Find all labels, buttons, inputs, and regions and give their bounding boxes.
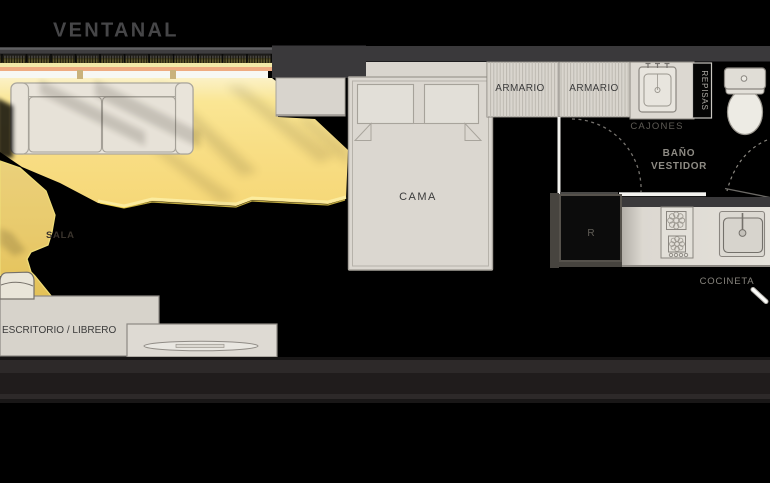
svg-text:VENTANAL: VENTANAL [53,20,179,42]
svg-text:BAÑO: BAÑO [663,146,696,159]
svg-text:VESTIDOR: VESTIDOR [651,161,707,172]
svg-text:REPISAS: REPISAS [700,70,709,110]
svg-text:SALA: SALA [46,230,75,241]
svg-text:ARMARIO: ARMARIO [569,83,618,94]
svg-text:ARMARIO: ARMARIO [495,83,544,94]
svg-text:COCINETA: COCINETA [700,276,755,287]
svg-text:R: R [587,228,594,239]
svg-text:ESCRITORIO / LIBRERO: ESCRITORIO / LIBRERO [2,325,117,336]
svg-text:CAJONES: CAJONES [630,121,683,132]
svg-text:CAMA: CAMA [399,191,437,203]
